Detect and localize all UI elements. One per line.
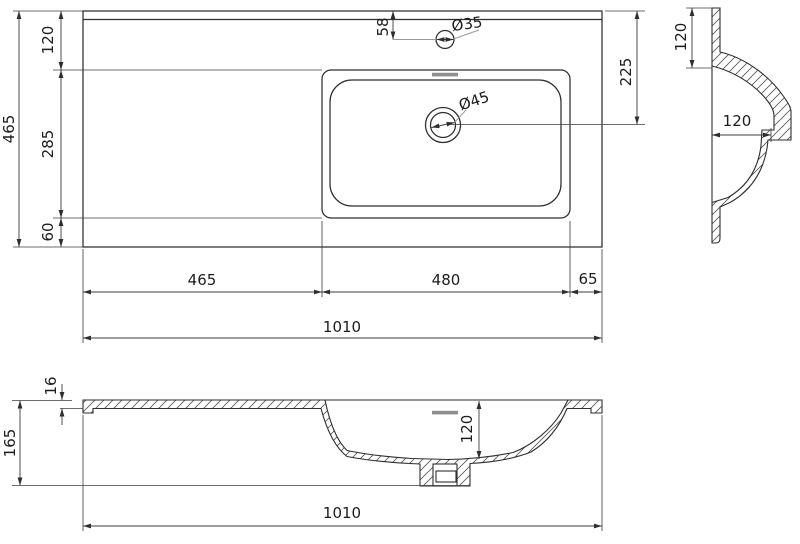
side-section-view: 120 120 bbox=[672, 8, 791, 243]
dim-front-bowl-depth: 120 bbox=[458, 401, 479, 459]
dim-total-width-plan: 1010 bbox=[83, 318, 602, 338]
dim-label-left-section: 465 bbox=[188, 271, 217, 289]
dim-label-front-height: 165 bbox=[1, 429, 19, 458]
dim-front-height: 165 bbox=[1, 401, 468, 486]
dim-label-drain-diameter: Ø45 bbox=[457, 88, 492, 115]
technical-drawing: 120 285 60 465 58 Ø35 Ø45 bbox=[0, 0, 800, 544]
dim-side-back-depth: 120 bbox=[672, 8, 712, 68]
plan-basin-outer-rim bbox=[322, 70, 570, 218]
drain-waste-outline bbox=[436, 471, 456, 482]
dim-label-side-back-depth: 120 bbox=[672, 23, 690, 52]
dim-label-total-width-front: 1010 bbox=[323, 504, 361, 522]
dim-label-total-depth: 465 bbox=[0, 115, 18, 144]
front-overflow-slot bbox=[432, 411, 458, 415]
dim-depth-chain: 120 285 60 bbox=[39, 11, 61, 247]
dim-label-faucet-offset: 58 bbox=[374, 17, 392, 36]
plan-overflow-slot bbox=[432, 73, 458, 77]
front-section-view: 16 165 120 1010 bbox=[1, 376, 602, 531]
front-section-profile bbox=[83, 400, 602, 486]
plan-basin-inner-bowl bbox=[330, 80, 561, 206]
dim-label-basin-width: 480 bbox=[432, 271, 461, 289]
dim-label-faucet-diameter: Ø35 bbox=[450, 13, 483, 35]
dim-label-total-width-plan: 1010 bbox=[323, 318, 361, 336]
dim-label-slab-thickness: 16 bbox=[42, 376, 60, 395]
plan-countertop-outline bbox=[83, 11, 602, 247]
dim-label-front-bowl-depth: 120 bbox=[458, 415, 476, 444]
dim-label-back-offset: 120 bbox=[39, 26, 57, 55]
dim-label-right-section: 65 bbox=[578, 270, 597, 288]
dim-label-basin-depth: 285 bbox=[39, 130, 57, 159]
dim-faucet: 58 Ø35 bbox=[374, 11, 484, 40]
dim-label-side-bowl-depth: 120 bbox=[723, 112, 752, 130]
dim-label-front-offset: 60 bbox=[39, 222, 57, 241]
dim-label-drain-offset: 225 bbox=[617, 58, 635, 87]
plan-view: 120 285 60 465 58 Ø35 Ø45 bbox=[0, 11, 645, 343]
dim-total-width-front: 1010 bbox=[83, 415, 602, 531]
